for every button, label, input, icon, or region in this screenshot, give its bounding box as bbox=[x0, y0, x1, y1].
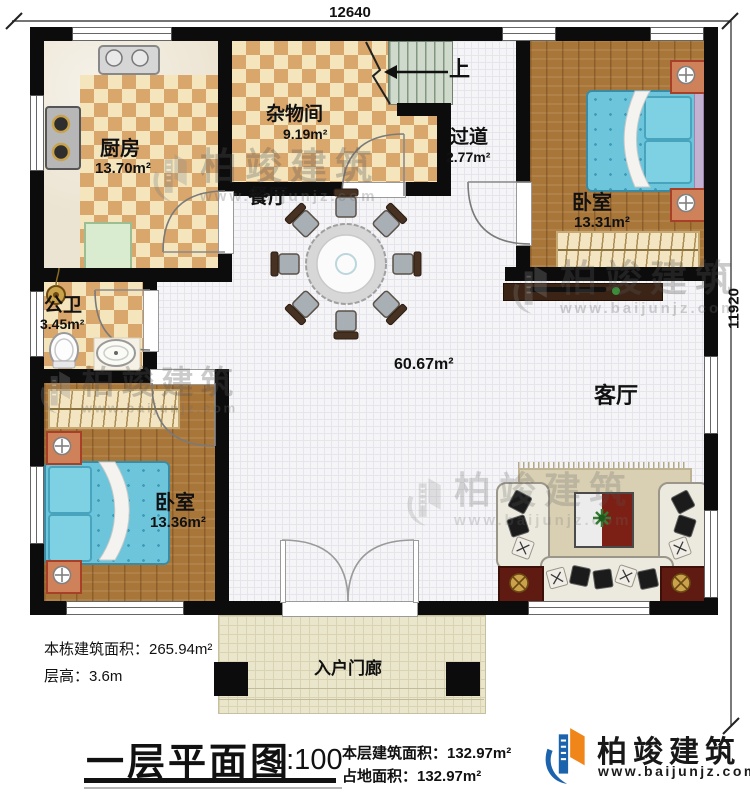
wardrobe-bedroom2 bbox=[48, 389, 180, 429]
bed-pillow bbox=[48, 466, 92, 514]
room-area-hallway: 2.77m² bbox=[446, 150, 490, 165]
door-frame bbox=[218, 191, 234, 254]
wall-segment bbox=[218, 41, 232, 191]
room-label-kitchen: 厨房 bbox=[100, 138, 140, 160]
sofa-left bbox=[496, 482, 550, 570]
room-label-porch: 入户门廊 bbox=[314, 660, 382, 679]
coffee-table bbox=[574, 492, 634, 548]
window bbox=[30, 466, 44, 544]
brand-logo-icon bbox=[538, 724, 592, 786]
end-table bbox=[660, 566, 706, 604]
entry-door-leaf bbox=[280, 540, 286, 603]
kitchen-fridge bbox=[84, 222, 132, 270]
wall-segment bbox=[404, 182, 451, 196]
end-table bbox=[498, 566, 544, 604]
window bbox=[72, 27, 172, 41]
tv bbox=[530, 287, 606, 292]
entry-door-frame bbox=[282, 601, 418, 617]
room-area-living: 60.67m² bbox=[394, 356, 454, 374]
kitchen-stove bbox=[45, 106, 81, 170]
dimension-right: 11920 bbox=[726, 281, 743, 337]
note-building-area: 本栋建筑面积：265.94m² bbox=[44, 638, 212, 659]
room-area-bedroom1: 13.31m² bbox=[574, 215, 630, 232]
bed-pillow bbox=[644, 140, 692, 184]
nightstand bbox=[46, 431, 82, 465]
room-area-bedroom2: 13.36m² bbox=[150, 515, 206, 532]
window bbox=[30, 95, 44, 171]
footprint-area-text: 占地面积：132.97m² bbox=[342, 765, 481, 786]
kitchen-sink bbox=[98, 45, 160, 75]
bed-headboard bbox=[694, 88, 704, 192]
entry-door-leaf bbox=[413, 540, 419, 603]
nightstand bbox=[670, 188, 706, 222]
room-label-storage: 杂物间 bbox=[266, 105, 323, 126]
room-area-storage: 9.19m² bbox=[283, 127, 327, 142]
nightstand bbox=[46, 560, 82, 594]
title-underline-thin bbox=[84, 787, 342, 789]
porch-column bbox=[446, 662, 480, 696]
bed-pillow bbox=[644, 96, 692, 140]
staircase bbox=[388, 41, 453, 105]
porch-step-line bbox=[218, 688, 484, 689]
room-area-kitchen: 13.70m² bbox=[95, 161, 151, 178]
wall-segment bbox=[397, 103, 451, 116]
brand-website: www.baijunjz.com bbox=[598, 763, 750, 779]
door-frame bbox=[143, 290, 159, 352]
wall-segment bbox=[516, 41, 530, 182]
tv-cabinet bbox=[503, 283, 663, 301]
wall-segment bbox=[30, 268, 232, 282]
bed-pillow bbox=[48, 514, 92, 562]
room-label-bathroom: 公卫 bbox=[44, 296, 82, 317]
window bbox=[502, 27, 556, 41]
room-label-bedroom2: 卧室 bbox=[155, 492, 195, 514]
door-frame bbox=[516, 182, 532, 246]
wardrobe-bedroom1 bbox=[556, 231, 700, 269]
room-label-bedroom1: 卧室 bbox=[572, 192, 612, 214]
door-frame bbox=[150, 369, 215, 385]
room-label-dining: 餐厅 bbox=[248, 186, 288, 208]
stairs-up-label: 上 bbox=[449, 58, 470, 81]
wall-segment bbox=[215, 383, 229, 601]
window bbox=[704, 356, 718, 434]
dimension-top: 12640 bbox=[320, 4, 380, 21]
window bbox=[528, 601, 650, 615]
window bbox=[650, 27, 704, 41]
room-label-hallway: 过道 bbox=[450, 128, 488, 149]
window bbox=[704, 510, 718, 598]
porch-column bbox=[214, 662, 248, 696]
porch-step-line bbox=[218, 699, 484, 700]
drawing-scale: 1:100 bbox=[270, 744, 343, 777]
wall-segment bbox=[505, 267, 718, 281]
floor-plan-canvas: 12640 11920 厨房 13.70m² 杂物间 9.19m² 过道 2.7… bbox=[0, 0, 750, 797]
wall-segment bbox=[213, 369, 229, 383]
wall-segment bbox=[30, 369, 150, 383]
window bbox=[66, 601, 184, 615]
wall-segment bbox=[143, 282, 157, 290]
nightstand bbox=[670, 60, 706, 94]
door-frame bbox=[342, 182, 406, 198]
title-underline bbox=[84, 778, 336, 783]
room-area-bathroom: 3.45m² bbox=[40, 317, 84, 332]
floor-area-text: 本层建筑面积：132.97m² bbox=[342, 742, 511, 763]
note-floor-height: 层高：3.6m bbox=[44, 665, 122, 686]
room-label-living: 客厅 bbox=[594, 384, 638, 408]
